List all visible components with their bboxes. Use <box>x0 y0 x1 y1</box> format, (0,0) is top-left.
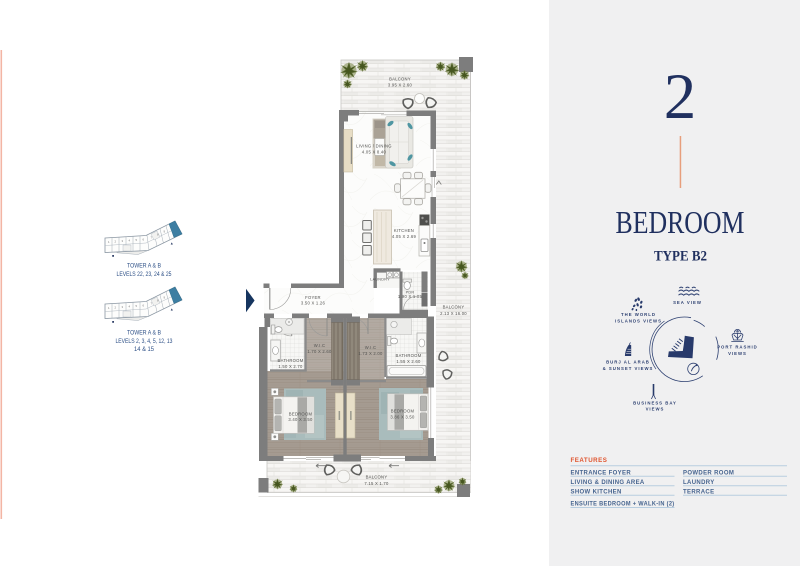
svg-text:& SUNSET VIEWS: & SUNSET VIEWS <box>603 366 654 371</box>
svg-text:LAUNDRY: LAUNDRY <box>370 277 390 281</box>
svg-text:VIEWS: VIEWS <box>728 351 747 356</box>
svg-text:BEDROOM: BEDROOM <box>391 409 415 414</box>
svg-text:BURJ AL ARAB: BURJ AL ARAB <box>606 360 650 365</box>
svg-text:TOWER A & B: TOWER A & B <box>127 331 161 337</box>
svg-text:3.50 X 1.26: 3.50 X 1.26 <box>301 301 326 306</box>
svg-text:1.55 X 2.60: 1.55 X 2.60 <box>396 359 421 364</box>
svg-text:2: 2 <box>664 61 697 133</box>
svg-text:LEVELS 2, 3, 4, 5, 12, 13: LEVELS 2, 3, 4, 5, 12, 13 <box>116 339 174 345</box>
svg-text:■: ■ <box>112 320 114 324</box>
svg-text:BEDROOM: BEDROOM <box>616 204 745 240</box>
svg-text:FEATURES: FEATURES <box>571 457 608 464</box>
svg-text:W.I.C: W.I.C <box>365 345 377 350</box>
svg-text:KITCHEN: KITCHEN <box>394 228 414 233</box>
svg-text:SEA VIEW: SEA VIEW <box>673 300 702 305</box>
svg-text:▲: ▲ <box>170 308 174 312</box>
svg-text:ENTRANCE FOYER: ENTRANCE FOYER <box>571 471 632 477</box>
svg-text:3.95 X 2.60: 3.95 X 2.60 <box>388 83 413 88</box>
svg-text:4.05 X 2.69: 4.05 X 2.69 <box>392 234 417 239</box>
svg-text:LEVELS 22, 23, 24 & 25: LEVELS 22, 23, 24 & 25 <box>117 272 173 278</box>
svg-text:BATHROOM: BATHROOM <box>278 358 304 363</box>
svg-text:BATHROOM: BATHROOM <box>396 353 422 358</box>
svg-text:▲: ▲ <box>170 242 174 246</box>
svg-text:POWDER ROOM: POWDER ROOM <box>683 471 734 477</box>
svg-text:1.73 X 2.00: 1.73 X 2.00 <box>358 351 383 356</box>
svg-text:THE WORLD: THE WORLD <box>621 312 656 317</box>
svg-text:LIVING / DINING: LIVING / DINING <box>356 144 392 149</box>
svg-text:VIEWS: VIEWS <box>646 407 665 412</box>
svg-text:BUSINESS BAY: BUSINESS BAY <box>633 401 677 406</box>
svg-text:4.05 X 8.40: 4.05 X 8.40 <box>362 150 387 155</box>
svg-text:FOYER: FOYER <box>305 295 321 300</box>
svg-text:ISLANDS VIEWS: ISLANDS VIEWS <box>615 319 662 324</box>
svg-text:1.50 X 2.70: 1.50 X 2.70 <box>278 364 303 369</box>
svg-text:LAUNDRY: LAUNDRY <box>683 480 715 486</box>
svg-text:LIVING & DINING AREA: LIVING & DINING AREA <box>571 480 645 486</box>
svg-text:TERRACE: TERRACE <box>683 490 714 496</box>
svg-text:7.15 X 1.70: 7.15 X 1.70 <box>364 481 389 486</box>
svg-text:TYPE B2: TYPE B2 <box>654 249 707 265</box>
svg-text:BEDROOM: BEDROOM <box>289 411 313 416</box>
svg-text:ENSUITE BEDROOM + WALK-IN (2): ENSUITE BEDROOM + WALK-IN (2) <box>571 501 675 507</box>
svg-text:SHOW KITCHEN: SHOW KITCHEN <box>571 490 622 496</box>
svg-text:1.70 X 2.60: 1.70 X 2.60 <box>307 349 332 354</box>
svg-text:BALCONY: BALCONY <box>389 77 411 82</box>
svg-text:3.40 X 3.50: 3.40 X 3.50 <box>288 417 313 422</box>
svg-text:14 & 15: 14 & 15 <box>134 347 155 353</box>
svg-text:BALCONY: BALCONY <box>443 305 465 310</box>
svg-text:1.90 X 1.05: 1.90 X 1.05 <box>398 294 423 299</box>
svg-text:W.I.C: W.I.C <box>314 343 326 348</box>
svg-text:2.13 X 16.00: 2.13 X 16.00 <box>440 311 467 316</box>
svg-text:BALCONY: BALCONY <box>366 474 388 479</box>
svg-text:PORT RASHID: PORT RASHID <box>717 344 758 349</box>
svg-text:3.86 X 3.50: 3.86 X 3.50 <box>390 414 415 419</box>
svg-text:TOWER A & B: TOWER A & B <box>127 264 161 270</box>
svg-text:■: ■ <box>112 254 114 258</box>
